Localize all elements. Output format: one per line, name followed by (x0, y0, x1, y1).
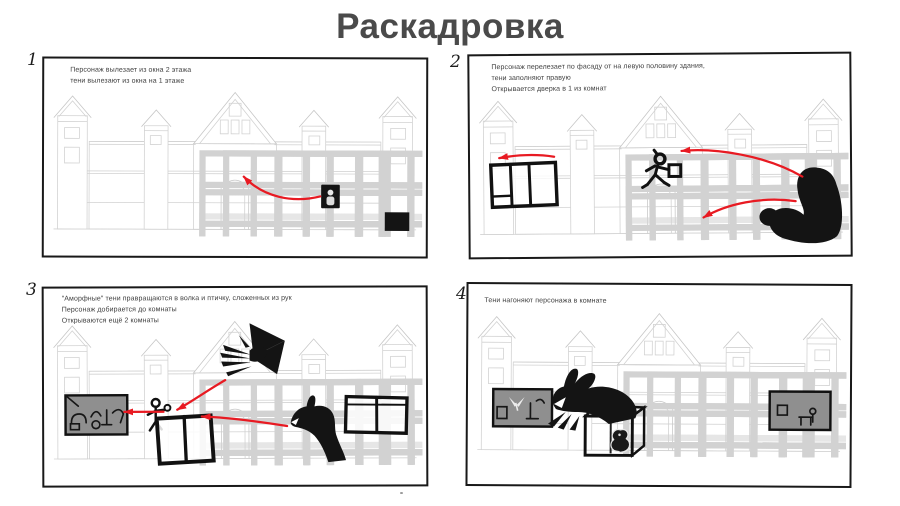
opened-window-frame-right (345, 397, 407, 434)
panel-caption: Тени нагоняют персонажа в комнате (484, 296, 606, 307)
caption-line: Открывается дверка в 1 из комнат (492, 83, 706, 95)
caption-line: Персонаж вылезает из окна 2 этажа (70, 66, 191, 77)
page-title: Раскадровка (0, 7, 900, 47)
opened-window-frame-center (157, 415, 214, 463)
panel-number-4: 4 (456, 284, 467, 304)
scene-4 (467, 284, 850, 486)
panel-caption: "Аморфные" тени правращаются в волка и п… (62, 294, 292, 327)
dark-room (65, 395, 127, 434)
opened-room-frame (491, 162, 557, 207)
character-in-box (611, 429, 630, 452)
storyboard-panel-1: Персонаж вылезает из окна 2 этажа тени в… (42, 56, 429, 258)
caption-line: Тени нагоняют персонажа в комнате (484, 296, 606, 307)
panel-number-1: 1 (27, 50, 38, 70)
caption-line: Персонаж добирается до комнаты (62, 305, 292, 317)
speck (400, 492, 403, 494)
panel-number-3: 3 (26, 280, 37, 300)
caption-line: Открываются ещё 2 комнаты (62, 315, 292, 327)
panel-caption: Персонаж перелезает по фасаду от на леву… (491, 62, 705, 96)
caption-line: "Аморфные" тени правращаются в волка и п… (62, 294, 292, 306)
panel-number-2: 2 (450, 52, 461, 72)
caption-line: тени вылезают из окна на 1 этаже (70, 76, 191, 87)
storyboard-panel-3: "Аморфные" тени правращаются в волка и п… (42, 285, 429, 487)
dark-room-right (770, 391, 831, 430)
dark-room-left (493, 389, 552, 427)
storyboard-panel-4: Тени нагоняют персонажа в комнате (465, 282, 852, 488)
scene-1 (44, 59, 427, 257)
character-in-window (321, 185, 340, 209)
shadow-window-square (385, 212, 410, 231)
panel-caption: Персонаж вылезает из окна 2 этажа тени в… (70, 66, 191, 88)
caption-line: Персонаж перелезает по фасаду от на леву… (491, 62, 705, 74)
storyboard-panel-2: Персонаж перелезает по фасаду от на леву… (467, 52, 852, 260)
building-facade-sketch (53, 92, 426, 257)
